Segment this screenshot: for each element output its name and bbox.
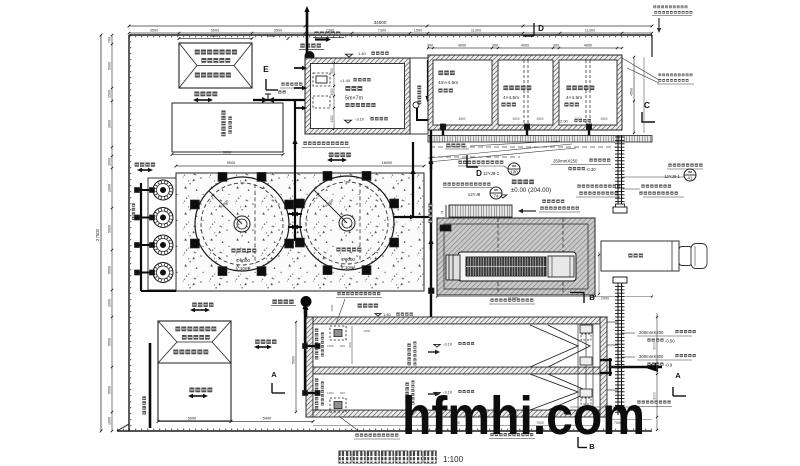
svg-text:-3.10: -3.10 <box>443 342 453 347</box>
svg-text:-3.10: -3.10 <box>355 117 365 122</box>
svg-text:3000: 3000 <box>653 392 657 400</box>
svg-text:7300: 7300 <box>378 29 386 33</box>
svg-text:11300: 11300 <box>585 29 595 33</box>
svg-text:3000: 3000 <box>108 120 112 128</box>
svg-text:3000: 3000 <box>574 117 581 121</box>
svg-text:5000: 5000 <box>210 34 218 38</box>
svg-text:2.00: 2.00 <box>560 119 569 124</box>
svg-text:-0.9: -0.9 <box>665 363 673 368</box>
svg-text:5000: 5000 <box>188 417 196 421</box>
svg-text:300: 300 <box>427 44 433 48</box>
svg-text:1000: 1000 <box>108 158 112 166</box>
svg-text:=1.40: =1.40 <box>340 78 351 83</box>
svg-text:250mmX250: 250mmX250 <box>553 159 578 164</box>
svg-text:74: 74 <box>494 194 499 199</box>
svg-text:1300: 1300 <box>327 344 334 348</box>
svg-text:4000: 4000 <box>458 44 466 48</box>
svg-text:300: 300 <box>492 44 498 48</box>
svg-text:5000: 5000 <box>108 266 112 274</box>
svg-text:2000: 2000 <box>601 297 609 301</box>
svg-text:5m×7m: 5m×7m <box>345 96 364 102</box>
svg-text:2000: 2000 <box>108 299 112 307</box>
svg-text:1.40: 1.40 <box>358 51 367 56</box>
svg-text:12YJ8: 12YJ8 <box>468 192 481 197</box>
svg-text:A: A <box>675 371 681 380</box>
svg-text:1300: 1300 <box>327 391 334 395</box>
svg-text:1500: 1500 <box>330 88 334 95</box>
svg-text:±0.00 (204.00): ±0.00 (204.00) <box>511 187 551 194</box>
svg-text:900: 900 <box>340 391 345 395</box>
svg-text:V:10m³: V:10m³ <box>341 265 356 270</box>
svg-text:5000: 5000 <box>108 386 112 394</box>
svg-text:700: 700 <box>108 37 112 43</box>
svg-text:-0.30: -0.30 <box>586 167 596 172</box>
svg-text:T: T <box>441 210 444 215</box>
svg-text:300mmX300: 300mmX300 <box>639 354 664 359</box>
svg-text:5000: 5000 <box>211 29 219 33</box>
svg-text:4×4.5m: 4×4.5m <box>566 95 582 101</box>
svg-text:3500: 3500 <box>458 117 465 121</box>
svg-text:12YJ9-1: 12YJ9-1 <box>483 171 500 176</box>
svg-text:2500: 2500 <box>536 117 543 121</box>
svg-text:12YJ9-1: 12YJ9-1 <box>664 174 680 179</box>
svg-text:5400: 5400 <box>263 417 271 421</box>
svg-text:E: E <box>263 64 269 74</box>
svg-text:Φ6000: Φ6000 <box>236 258 250 263</box>
svg-text:1400: 1400 <box>330 115 334 122</box>
svg-text:300: 300 <box>553 44 559 48</box>
svg-text:D: D <box>538 24 544 33</box>
svg-text:4000: 4000 <box>584 44 592 48</box>
svg-text:1:100: 1:100 <box>443 455 464 464</box>
svg-text:V:10m³: V:10m³ <box>236 266 251 271</box>
svg-text:3500: 3500 <box>267 34 275 38</box>
svg-text:1500: 1500 <box>108 90 112 98</box>
svg-text:27500: 27500 <box>95 228 100 241</box>
svg-text:2000: 2000 <box>364 329 371 333</box>
svg-text:4000: 4000 <box>521 44 529 48</box>
svg-text:5000: 5000 <box>108 225 112 233</box>
svg-text:16000: 16000 <box>382 161 393 165</box>
svg-text:2000: 2000 <box>330 304 334 311</box>
svg-text:C: C <box>644 100 650 110</box>
svg-text:5000: 5000 <box>108 62 112 70</box>
svg-text:34000: 34000 <box>374 20 387 25</box>
svg-text:41: 41 <box>688 176 693 181</box>
svg-text:5000: 5000 <box>108 338 112 346</box>
svg-text:1500: 1500 <box>414 29 422 33</box>
svg-text:5600: 5600 <box>292 356 296 364</box>
svg-text:4m×4.5m: 4m×4.5m <box>438 80 458 86</box>
svg-text:2500: 2500 <box>600 117 607 121</box>
svg-text:1.40: 1.40 <box>383 312 392 317</box>
svg-text:4×4.5m: 4×4.5m <box>503 95 519 101</box>
svg-text:-0.50: -0.50 <box>665 339 675 344</box>
svg-text:D: D <box>476 169 482 178</box>
svg-text:900: 900 <box>340 344 345 348</box>
svg-text:3000: 3000 <box>653 342 657 350</box>
svg-text:9000: 9000 <box>223 150 231 154</box>
svg-text:3500: 3500 <box>150 29 158 33</box>
svg-text:3500: 3500 <box>274 29 282 33</box>
svg-text:Φ6000: Φ6000 <box>341 257 355 262</box>
svg-text:B: B <box>589 293 595 302</box>
svg-text:11300: 11300 <box>471 29 481 33</box>
svg-text:hfmhi.com: hfmhi.com <box>402 386 645 446</box>
svg-text:2000: 2000 <box>108 184 112 192</box>
svg-text:100: 100 <box>510 170 518 175</box>
svg-text:900: 900 <box>330 68 334 74</box>
svg-text:200mmX200: 200mmX200 <box>639 330 664 335</box>
svg-text:A: A <box>271 370 277 379</box>
svg-text:9000: 9000 <box>227 161 235 165</box>
svg-text:3000: 3000 <box>512 117 519 121</box>
svg-text:4500: 4500 <box>630 88 634 96</box>
svg-text:1000: 1000 <box>108 417 112 425</box>
svg-text:900: 900 <box>348 342 352 347</box>
